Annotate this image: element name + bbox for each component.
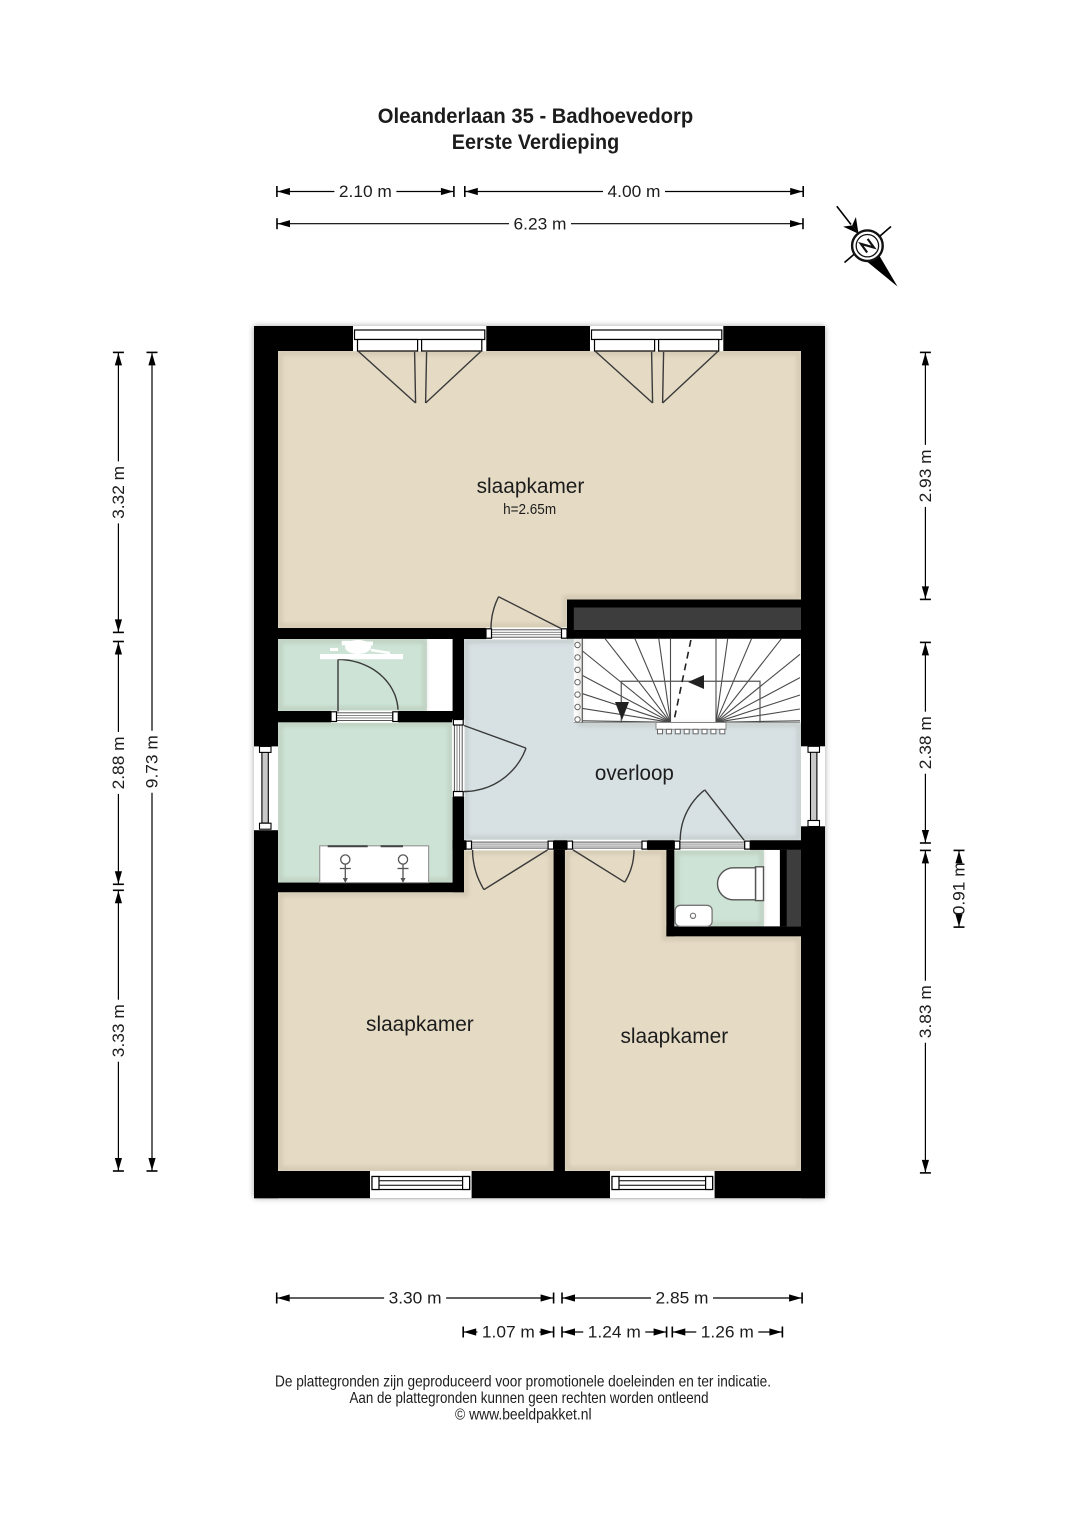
- svg-text:© www.beeldpakket.nl: © www.beeldpakket.nl: [455, 1407, 592, 1424]
- svg-text:2.10 m: 2.10 m: [339, 182, 392, 201]
- svg-text:slaapkamer: slaapkamer: [620, 1024, 728, 1048]
- svg-text:Aan de plattegronden kunnen ge: Aan de plattegronden kunnen geen rechten…: [350, 1390, 709, 1407]
- svg-text:1.26 m: 1.26 m: [701, 1323, 754, 1342]
- svg-text:De plattegronden zijn geproduc: De plattegronden zijn geproduceerd voor …: [275, 1374, 771, 1391]
- svg-text:2.38 m: 2.38 m: [916, 716, 935, 769]
- svg-text:3.33 m: 3.33 m: [109, 1004, 128, 1057]
- svg-text:2.85 m: 2.85 m: [656, 1289, 709, 1308]
- svg-text:Oleanderlaan 35 - Badhoevedorp: Oleanderlaan 35 - Badhoevedorp: [378, 105, 693, 128]
- svg-text:1.24 m: 1.24 m: [588, 1323, 641, 1342]
- svg-text:9.73 m: 9.73 m: [143, 735, 162, 788]
- svg-text:slaapkamer: slaapkamer: [366, 1012, 474, 1036]
- svg-text:overloop: overloop: [595, 761, 674, 785]
- svg-text:3.83 m: 3.83 m: [916, 985, 935, 1038]
- svg-text:6.23 m: 6.23 m: [514, 214, 567, 233]
- svg-text:2.88 m: 2.88 m: [109, 736, 128, 789]
- svg-text:h=2.65m: h=2.65m: [503, 502, 556, 518]
- svg-text:4.00 m: 4.00 m: [608, 182, 661, 201]
- svg-text:3.30 m: 3.30 m: [389, 1289, 442, 1308]
- svg-text:Eerste Verdieping: Eerste Verdieping: [452, 131, 619, 154]
- svg-text:3.32 m: 3.32 m: [109, 466, 128, 519]
- svg-text:slaapkamer: slaapkamer: [477, 474, 585, 498]
- svg-text:1.07 m: 1.07 m: [482, 1323, 535, 1342]
- svg-text:2.93 m: 2.93 m: [916, 449, 935, 502]
- svg-text:0.91 m: 0.91 m: [950, 862, 969, 915]
